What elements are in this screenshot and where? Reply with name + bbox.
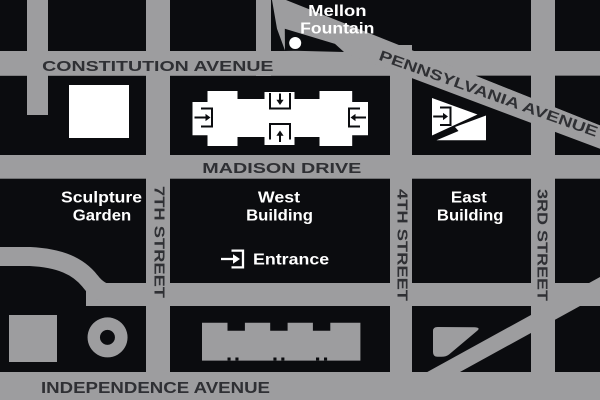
- svg-text:Sculpture: Sculpture: [61, 189, 142, 206]
- svg-text:Mellon: Mellon: [308, 3, 366, 20]
- svg-text:4TH STREET: 4TH STREET: [394, 189, 411, 301]
- svg-text:Entrance: Entrance: [253, 252, 329, 269]
- svg-text:Building: Building: [246, 207, 313, 224]
- svg-text:West: West: [258, 189, 301, 206]
- svg-text:East: East: [451, 189, 488, 206]
- svg-text:Fountain: Fountain: [300, 20, 374, 37]
- svg-text:3RD STREET: 3RD STREET: [534, 189, 551, 301]
- svg-text:INDEPENDENCE AVENUE: INDEPENDENCE AVENUE: [41, 380, 270, 397]
- svg-text:MADISON DRIVE: MADISON DRIVE: [202, 161, 361, 177]
- svg-text:Building: Building: [437, 207, 504, 224]
- svg-text:CONSTITUTION AVENUE: CONSTITUTION AVENUE: [42, 59, 274, 75]
- svg-text:Garden: Garden: [73, 207, 131, 224]
- svg-text:7TH STREET: 7TH STREET: [151, 186, 168, 298]
